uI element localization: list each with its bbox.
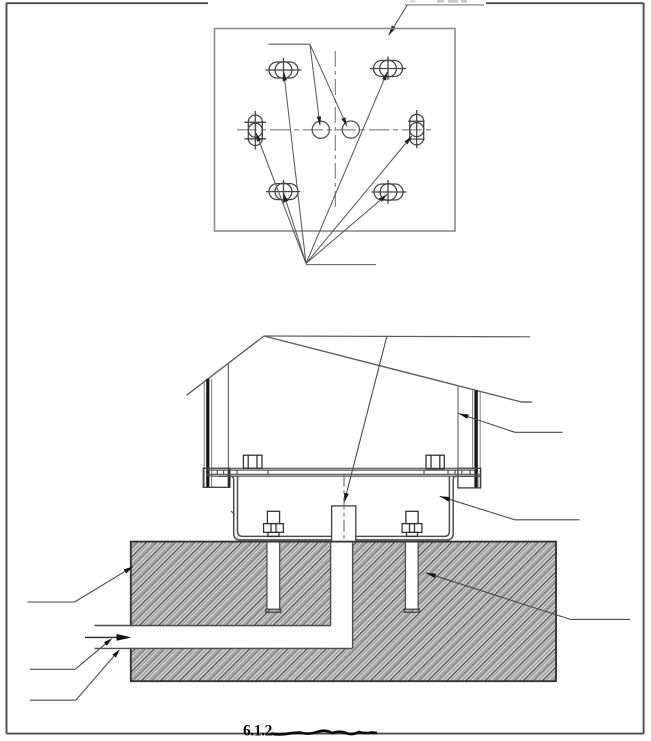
svg-text:6.1.2: 6.1.2	[243, 723, 273, 740]
